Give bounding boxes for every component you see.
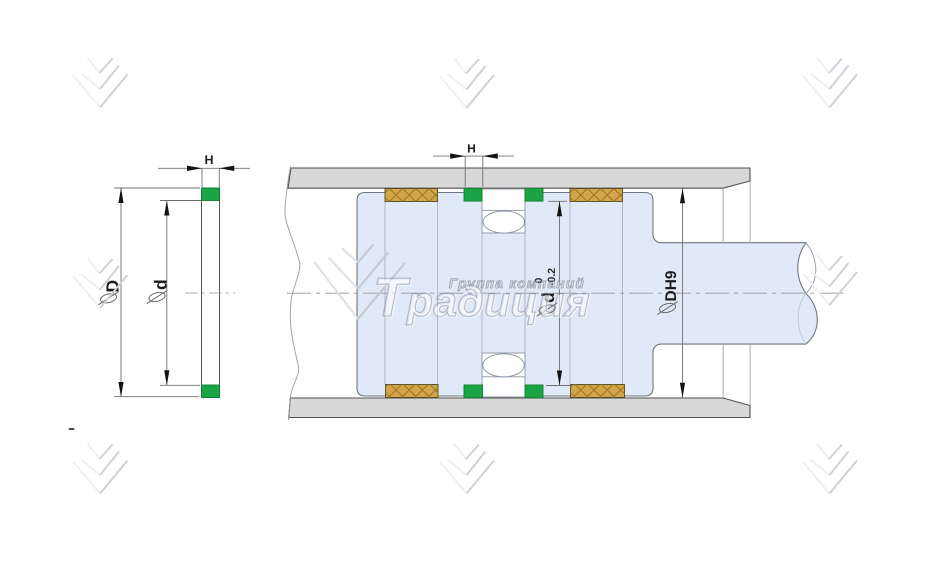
svg-text:DH9: DH9 [663, 270, 680, 301]
svg-text:H: H [467, 142, 476, 156]
svg-text:d: d [151, 279, 171, 290]
svg-text:H: H [204, 153, 213, 167]
